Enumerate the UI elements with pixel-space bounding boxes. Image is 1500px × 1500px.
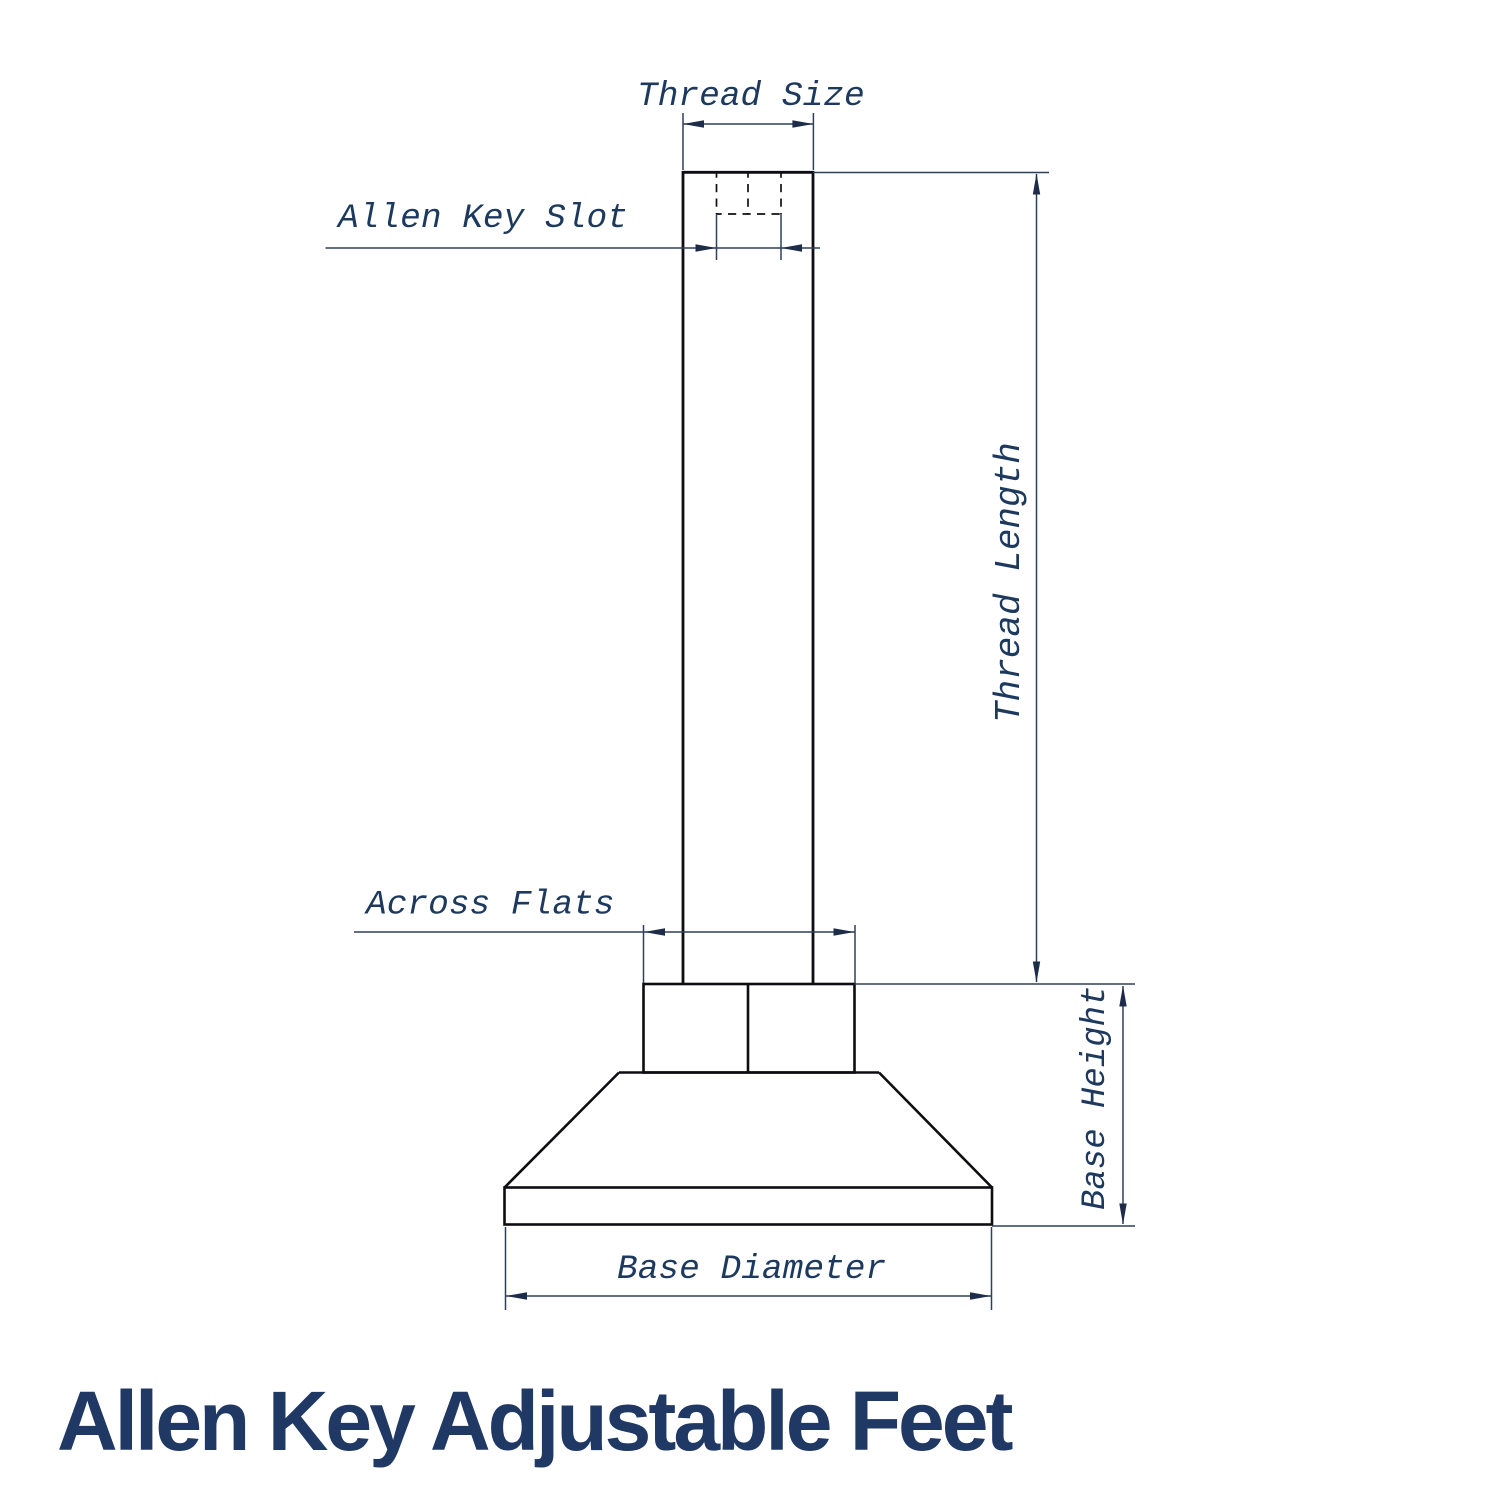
svg-text:Allen Key Slot: Allen Key Slot xyxy=(336,199,628,238)
svg-text:Thread Size: Thread Size xyxy=(637,77,865,116)
svg-text:Base Height: Base Height xyxy=(1077,986,1115,1210)
svg-text:Thread Length: Thread Length xyxy=(989,442,1030,723)
svg-text:Allen Key Adjustable Feet: Allen Key Adjustable Feet xyxy=(57,1374,1012,1468)
svg-text:Across Flats: Across Flats xyxy=(364,886,614,925)
svg-text:Base Diameter: Base Diameter xyxy=(617,1250,886,1289)
